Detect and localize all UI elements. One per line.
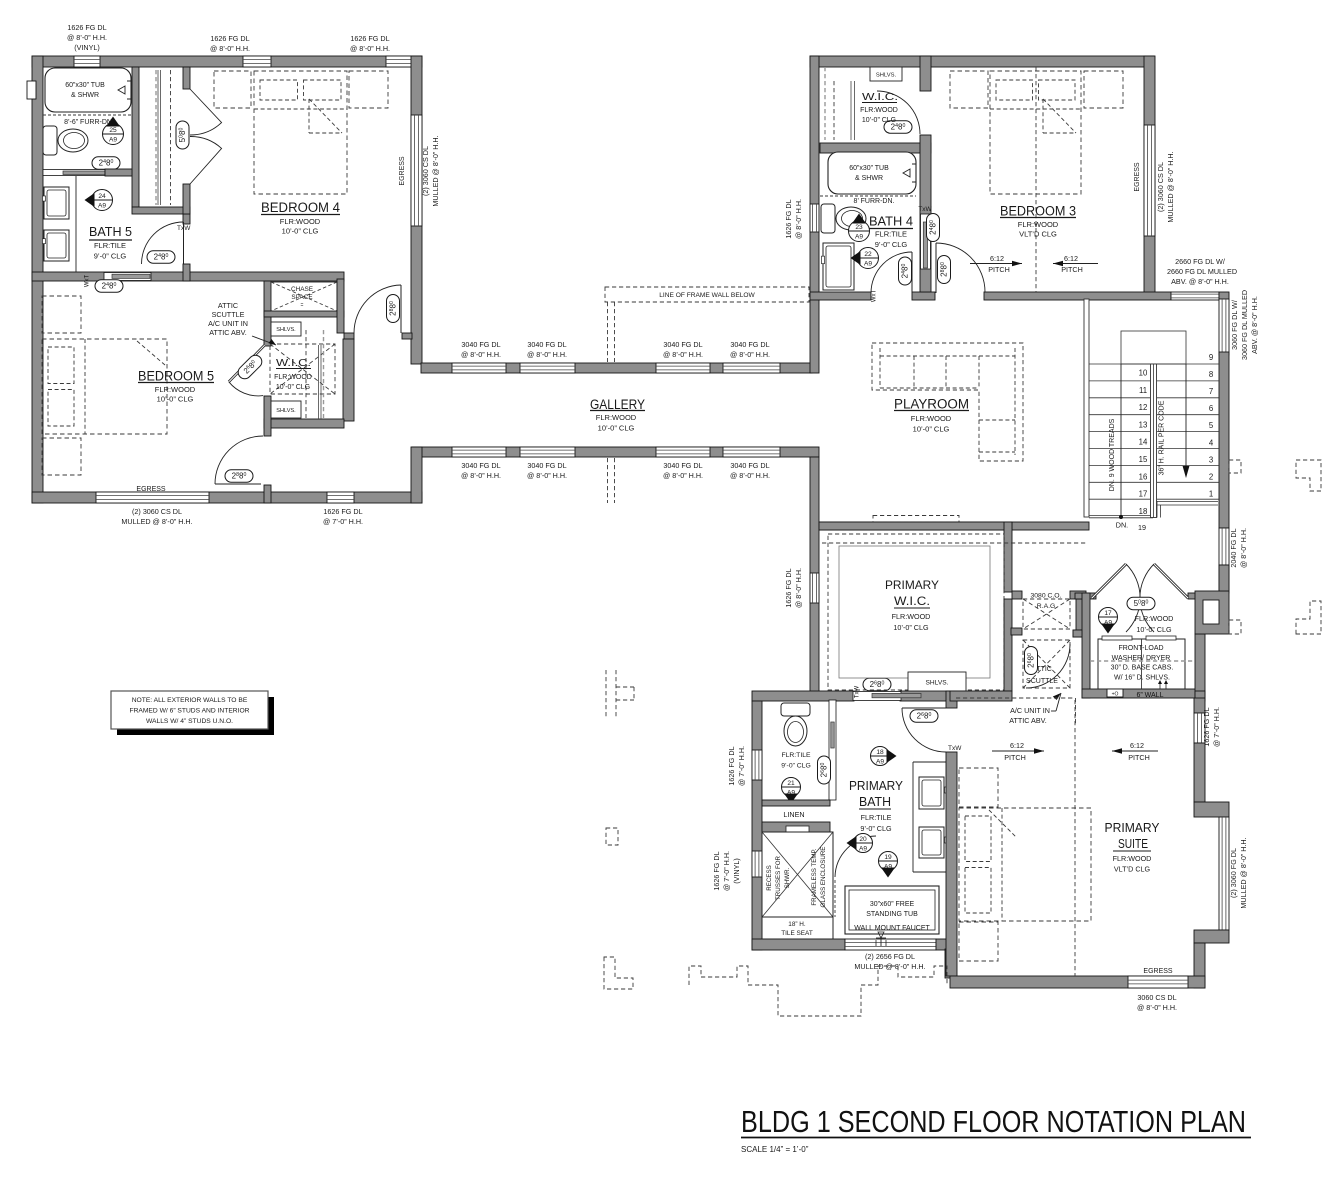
svg-text:1: 1 [1209,489,1213,498]
svg-text:10’-0” CLG: 10’-0” CLG [913,425,950,434]
svg-text:BATH: BATH [859,795,891,809]
svg-text:19: 19 [884,854,892,861]
svg-text:(2) 3060 FG DL: (2) 3060 FG DL [1229,848,1238,898]
svg-text:SHWR.: SHWR. [784,867,791,888]
svg-text:STANDING TUB: STANDING TUB [866,911,918,918]
svg-text:2: 2 [1209,472,1213,481]
svg-text:W.I.C.: W.I.C. [894,596,930,608]
svg-text:7: 7 [1209,387,1213,396]
svg-text:WALLS W/ 4” STUDS U.N.O.: WALLS W/ 4” STUDS U.N.O. [146,718,233,725]
svg-text:@ 8’-0” H.H.: @ 8’-0” H.H. [527,471,567,480]
svg-text:FLR:WOOD: FLR:WOOD [1113,854,1152,863]
svg-text:FLR:WOOD: FLR:WOOD [155,385,196,394]
svg-text:1626 FG DL: 1626 FG DL [727,746,736,785]
svg-text:9’-0” CLG: 9’-0” CLG [875,240,908,249]
svg-text:19: 19 [1138,523,1146,532]
svg-text:13: 13 [1139,420,1148,429]
svg-text:1626 FG DL: 1626 FG DL [784,199,793,238]
svg-text:WALL MOUNT FAUCET: WALL MOUNT FAUCET [854,925,930,932]
svg-text:3040 FG DL: 3040 FG DL [730,461,769,470]
svg-text:1626 FG DL: 1626 FG DL [350,34,389,43]
svg-text:3040 FG DL: 3040 FG DL [663,340,702,349]
svg-text:3040 FG DL: 3040 FG DL [730,340,769,349]
svg-text:ATTIC ABV.: ATTIC ABV. [1009,716,1047,725]
svg-text:3: 3 [1209,455,1213,464]
svg-text:@ 8’-0” H.H.: @ 8’-0” H.H. [67,33,107,42]
svg-text:10’-0” CLG: 10’-0” CLG [893,623,929,632]
svg-text:14: 14 [1139,438,1148,447]
svg-text:BEDROOM 3: BEDROOM 3 [1000,204,1076,219]
svg-text:(2) 3060 CS DL: (2) 3060 CS DL [132,507,182,516]
svg-text:MULLED @ 8’-0” H.H.: MULLED @ 8’-0” H.H. [1239,837,1248,908]
svg-text:60”x30” TUB: 60”x30” TUB [65,82,105,89]
svg-text:A9: A9 [864,261,872,268]
svg-text:ATTIC ABV.: ATTIC ABV. [209,328,247,337]
svg-text:3060 CS DL: 3060 CS DL [1137,993,1176,1002]
svg-text:A9: A9 [98,203,106,210]
svg-text:@ 8’-0” H.H.: @ 8’-0” H.H. [794,199,803,239]
svg-text:(2) 2656 FG DL: (2) 2656 FG DL [865,952,915,961]
svg-text:A/C UNIT IN: A/C UNIT IN [1010,706,1050,715]
svg-text:2040 FG DL: 2040 FG DL [1229,528,1238,567]
svg-text:3040 FG DL: 3040 FG DL [461,340,500,349]
svg-text:MULLED @ 8’-0” H.H.: MULLED @ 8’-0” H.H. [1166,151,1175,222]
svg-text:1626 FG DL: 1626 FG DL [67,23,106,32]
svg-text:16: 16 [1139,472,1148,481]
svg-text:EGRESS: EGRESS [399,156,406,186]
svg-text:10’-0” CLG: 10’-0” CLG [598,424,635,433]
svg-text:@ 7’-0” H.H.: @ 7’-0” H.H. [722,851,731,891]
svg-text:20: 20 [859,836,867,843]
svg-text:TRUSSES FOR: TRUSSES FOR [775,855,782,900]
svg-text:ATTIC: ATTIC [218,301,238,310]
svg-text:10’-0” CLG: 10’-0” CLG [862,117,896,124]
svg-text:VLT’D CLG: VLT’D CLG [1114,865,1151,874]
svg-text:GALLERY: GALLERY [590,397,645,412]
svg-text:@ 8’-0” H.H.: @ 8’-0” H.H. [1137,1003,1177,1012]
svg-text:+O: +O [1112,692,1119,698]
svg-text:EGRESS: EGRESS [1143,968,1173,975]
svg-text:3060 FG DL MULLED: 3060 FG DL MULLED [1240,290,1249,360]
svg-text:18: 18 [1139,507,1148,516]
svg-text:LINEN: LINEN [783,810,804,819]
svg-text:9’-0” CLG: 9’-0” CLG [781,763,810,770]
svg-text:SHLVS.: SHLVS. [926,680,949,687]
svg-text:10’-0” CLG: 10’-0” CLG [276,384,310,391]
svg-text:PITCH: PITCH [988,265,1010,274]
svg-text:12: 12 [1139,403,1148,412]
svg-text:1626 FG DL: 1626 FG DL [323,507,362,516]
svg-text:3040 FG DL: 3040 FG DL [527,340,566,349]
svg-text:NOTE: ALL EXTERIOR WALLS TO BE: NOTE: ALL EXTERIOR WALLS TO BE [132,697,248,704]
svg-text:DN.: DN. [1116,521,1128,530]
svg-text:& SHWR: & SHWR [855,175,883,182]
svg-text:A9: A9 [855,234,863,241]
svg-text:17: 17 [1104,610,1112,617]
svg-text:VLT’D CLG: VLT’D CLG [1019,230,1057,239]
svg-text:30” D. BASE CABS.: 30” D. BASE CABS. [1111,665,1174,672]
svg-text:@ 8’-0” H.H.: @ 8’-0” H.H. [527,350,567,359]
svg-text:FLR:WOOD: FLR:WOOD [911,414,952,423]
svg-text:A/C UNIT IN: A/C UNIT IN [208,319,248,328]
svg-text:BEDROOM 4: BEDROOM 4 [261,200,340,215]
svg-text:9’-0” CLG: 9’-0” CLG [860,824,892,833]
svg-text:PITCH: PITCH [1061,265,1083,274]
svg-text:@ 8’-0” H.H.: @ 8’-0” H.H. [350,44,390,53]
svg-text:@ 8’-0” H.H.: @ 8’-0” H.H. [461,350,501,359]
svg-text:3060 FG DL W/: 3060 FG DL W/ [1230,300,1239,350]
svg-text:A9: A9 [859,846,867,853]
svg-text:SHLVS.: SHLVS. [276,408,296,414]
svg-text:A9: A9 [109,137,117,144]
svg-text:FLR:WOOD: FLR:WOOD [280,217,321,226]
svg-text:SHLVS.: SHLVS. [276,327,296,333]
svg-text:36” H. RAIL PER CODE: 36” H. RAIL PER CODE [1159,400,1166,475]
svg-text:A9: A9 [876,759,884,766]
svg-text:3040 FG DL: 3040 FG DL [527,461,566,470]
svg-text:1626 FG DL: 1626 FG DL [784,568,793,607]
svg-text:GLASS ENCLOSURE: GLASS ENCLOSURE [820,847,827,908]
svg-text:R.A.G.: R.A.G. [1037,603,1058,610]
svg-text:10’-0” CLG: 10’-0” CLG [157,395,194,404]
svg-text:10: 10 [1139,369,1148,378]
svg-text:6:12: 6:12 [990,254,1004,263]
svg-text:FLR:WOOD: FLR:WOOD [596,413,637,422]
svg-text:FLR:WOOD: FLR:WOOD [274,374,312,381]
svg-text:8’ FURR-DN.: 8’ FURR-DN. [854,198,895,205]
svg-text:ABV. @ 8’-0” H.H.: ABV. @ 8’-0” H.H. [1171,277,1229,286]
svg-text:RECESS: RECESS [766,865,773,890]
svg-text:W.I.C.: W.I.C. [276,357,311,369]
svg-text:EGRESS: EGRESS [1134,162,1141,192]
svg-text:FRAMED W/ 6” STUDS AND INTERIO: FRAMED W/ 6” STUDS AND INTERIOR [129,708,249,715]
svg-text:=: = [301,303,304,309]
svg-text:WASHER/ DRYER: WASHER/ DRYER [1112,655,1171,662]
svg-text:22: 22 [864,251,872,258]
svg-text:4: 4 [1209,438,1214,447]
svg-text:6:12: 6:12 [1064,254,1078,263]
svg-text:@ 8’-0” H.H.: @ 8’-0” H.H. [730,471,770,480]
svg-text:WxT: WxT [85,275,91,288]
svg-text:@ 7’-0” H.H.: @ 7’-0” H.H. [1212,707,1221,747]
svg-text:TxW: TxW [918,206,932,213]
svg-text:TxW: TxW [177,225,191,232]
svg-text:(2) 3060 CS DL: (2) 3060 CS DL [1156,162,1165,212]
svg-text:(VINYL): (VINYL) [74,43,100,52]
svg-text:17: 17 [1139,490,1148,499]
svg-text:@ 7’-0” H.H.: @ 7’-0” H.H. [737,746,746,786]
svg-text:(2) 3060 CS DL: (2) 3060 CS DL [421,146,430,196]
svg-text:1626 FG DL: 1626 FG DL [712,851,721,890]
svg-text:6:12: 6:12 [1010,741,1024,750]
svg-text:8: 8 [1209,370,1213,379]
svg-text:9’-0” CLG: 9’-0” CLG [94,252,127,261]
svg-text:FLR:TILE: FLR:TILE [875,230,907,239]
svg-text:30”x60” FREE: 30”x60” FREE [870,901,915,908]
svg-text:@ 8’-0” H.H.: @ 8’-0” H.H. [663,471,703,480]
svg-text:18: 18 [876,749,884,756]
svg-text:FRONT-LOAD: FRONT-LOAD [1118,645,1163,652]
svg-text:10’-0” CLG: 10’-0” CLG [282,227,319,236]
svg-text:2660 FG DL MULLED: 2660 FG DL MULLED [1167,267,1237,276]
svg-text:21: 21 [787,780,795,787]
svg-text:@ 8’-0” H.H.: @ 8’-0” H.H. [1239,528,1248,568]
svg-text:EGRESS: EGRESS [136,486,166,493]
svg-text:SPACE: SPACE [291,294,312,301]
svg-text:1626 FG DL: 1626 FG DL [1202,707,1211,746]
svg-text:@ 8’-0” H.H.: @ 8’-0” H.H. [210,44,250,53]
svg-text:1626 FG DL: 1626 FG DL [210,34,249,43]
svg-text:@ 8’-0” H.H.: @ 8’-0” H.H. [461,471,501,480]
svg-text:MULLED @ 8’-0” H.H.: MULLED @ 8’-0” H.H. [121,517,192,526]
svg-text:WxT: WxT [872,290,878,303]
svg-text:CHASE: CHASE [291,286,313,293]
svg-text:MULLED @ 8’-0” H.H.: MULLED @ 8’-0” H.H. [431,135,440,206]
svg-text:15: 15 [1139,455,1148,464]
svg-text:PRIMARY: PRIMARY [849,779,904,793]
svg-text:W.I.C.: W.I.C. [862,91,898,103]
svg-text:9: 9 [1209,353,1213,362]
svg-text:FLR:WOOD: FLR:WOOD [892,612,931,621]
svg-text:10’-0” CLG: 10’-0” CLG [1136,625,1172,634]
svg-text:6: 6 [1209,404,1213,413]
svg-text:@ 7’-0” H.H.: @ 7’-0” H.H. [323,517,363,526]
svg-text:FLR:WOOD: FLR:WOOD [860,107,898,114]
svg-text:SUITE: SUITE [1118,837,1148,851]
svg-text:ABV. @ 8’-0” H.H.: ABV. @ 8’-0” H.H. [1250,296,1259,354]
svg-text:3080 C.O.: 3080 C.O. [1031,593,1062,600]
svg-text:3040 FG DL: 3040 FG DL [663,461,702,470]
svg-text:18” H.: 18” H. [788,921,806,928]
svg-text:5: 5 [1209,421,1214,430]
svg-text:TxW: TxW [855,685,861,698]
svg-text:@ 8’-0” H.H.: @ 8’-0” H.H. [663,350,703,359]
svg-text:FRAMELESS TEMP.: FRAMELESS TEMP. [811,848,818,905]
svg-text:BEDROOM 5: BEDROOM 5 [138,369,214,384]
svg-text:PITCH: PITCH [1128,753,1150,762]
svg-text:(VINYL): (VINYL) [732,858,741,884]
svg-text:23: 23 [855,224,863,231]
svg-text:DN. 9 WOOD TREADS: DN. 9 WOOD TREADS [1109,418,1116,491]
svg-text:BATH 5: BATH 5 [89,224,132,239]
svg-text:BLDG 1 SECOND FLOOR NOTATION P: BLDG 1 SECOND FLOOR NOTATION PLAN [741,1104,1246,1139]
svg-text:PRIMARY: PRIMARY [1105,821,1161,835]
svg-text:FLR:WOOD: FLR:WOOD [1018,220,1059,229]
svg-text:BATH 4: BATH 4 [869,214,913,229]
svg-text:MULLED @ 8’-0” H.H.: MULLED @ 8’-0” H.H. [854,962,925,971]
svg-text:SCALE 1/4” = 1’-0”: SCALE 1/4” = 1’-0” [741,1145,809,1154]
svg-text:@ 8’-0” H.H.: @ 8’-0” H.H. [730,350,770,359]
svg-text:FLR:TILE: FLR:TILE [781,752,811,759]
svg-text:3040 FG DL: 3040 FG DL [461,461,500,470]
svg-text:TxW: TxW [948,745,962,752]
svg-text:W/ 16” D. SHLVS.: W/ 16” D. SHLVS. [1114,675,1170,682]
svg-text:PRIMARY: PRIMARY [885,580,939,592]
svg-text:FLR:TILE: FLR:TILE [94,241,126,250]
svg-text:6:12: 6:12 [1130,741,1144,750]
svg-text:PLAYROOM: PLAYROOM [894,397,969,412]
svg-text:11: 11 [1139,386,1147,395]
svg-text:LINE OF FRAME WALL BELOW: LINE OF FRAME WALL BELOW [659,292,755,299]
svg-text:@ 8’-0” H.H.: @ 8’-0” H.H. [794,568,803,608]
svg-text:SCUTTLE: SCUTTLE [212,310,245,319]
svg-text:8’-6” FURR-DN.: 8’-6” FURR-DN. [64,119,114,126]
svg-text:24: 24 [98,193,106,200]
svg-text:FLR:WOOD: FLR:WOOD [1135,614,1174,623]
svg-text:60”x30” TUB: 60”x30” TUB [849,165,889,172]
svg-text:FLR:TILE: FLR:TILE [861,813,892,822]
svg-text:2660 FG DL W/: 2660 FG DL W/ [1175,257,1225,266]
svg-text:SHLVS.: SHLVS. [876,73,897,79]
svg-text:TILE SEAT: TILE SEAT [781,930,813,937]
svg-text:25: 25 [109,127,117,134]
svg-text:PITCH: PITCH [1004,753,1026,762]
svg-text:& SHWR: & SHWR [71,92,99,99]
svg-text:6” WALL: 6” WALL [1137,692,1164,699]
svg-text:SCUTTLE: SCUTTLE [1026,678,1058,685]
